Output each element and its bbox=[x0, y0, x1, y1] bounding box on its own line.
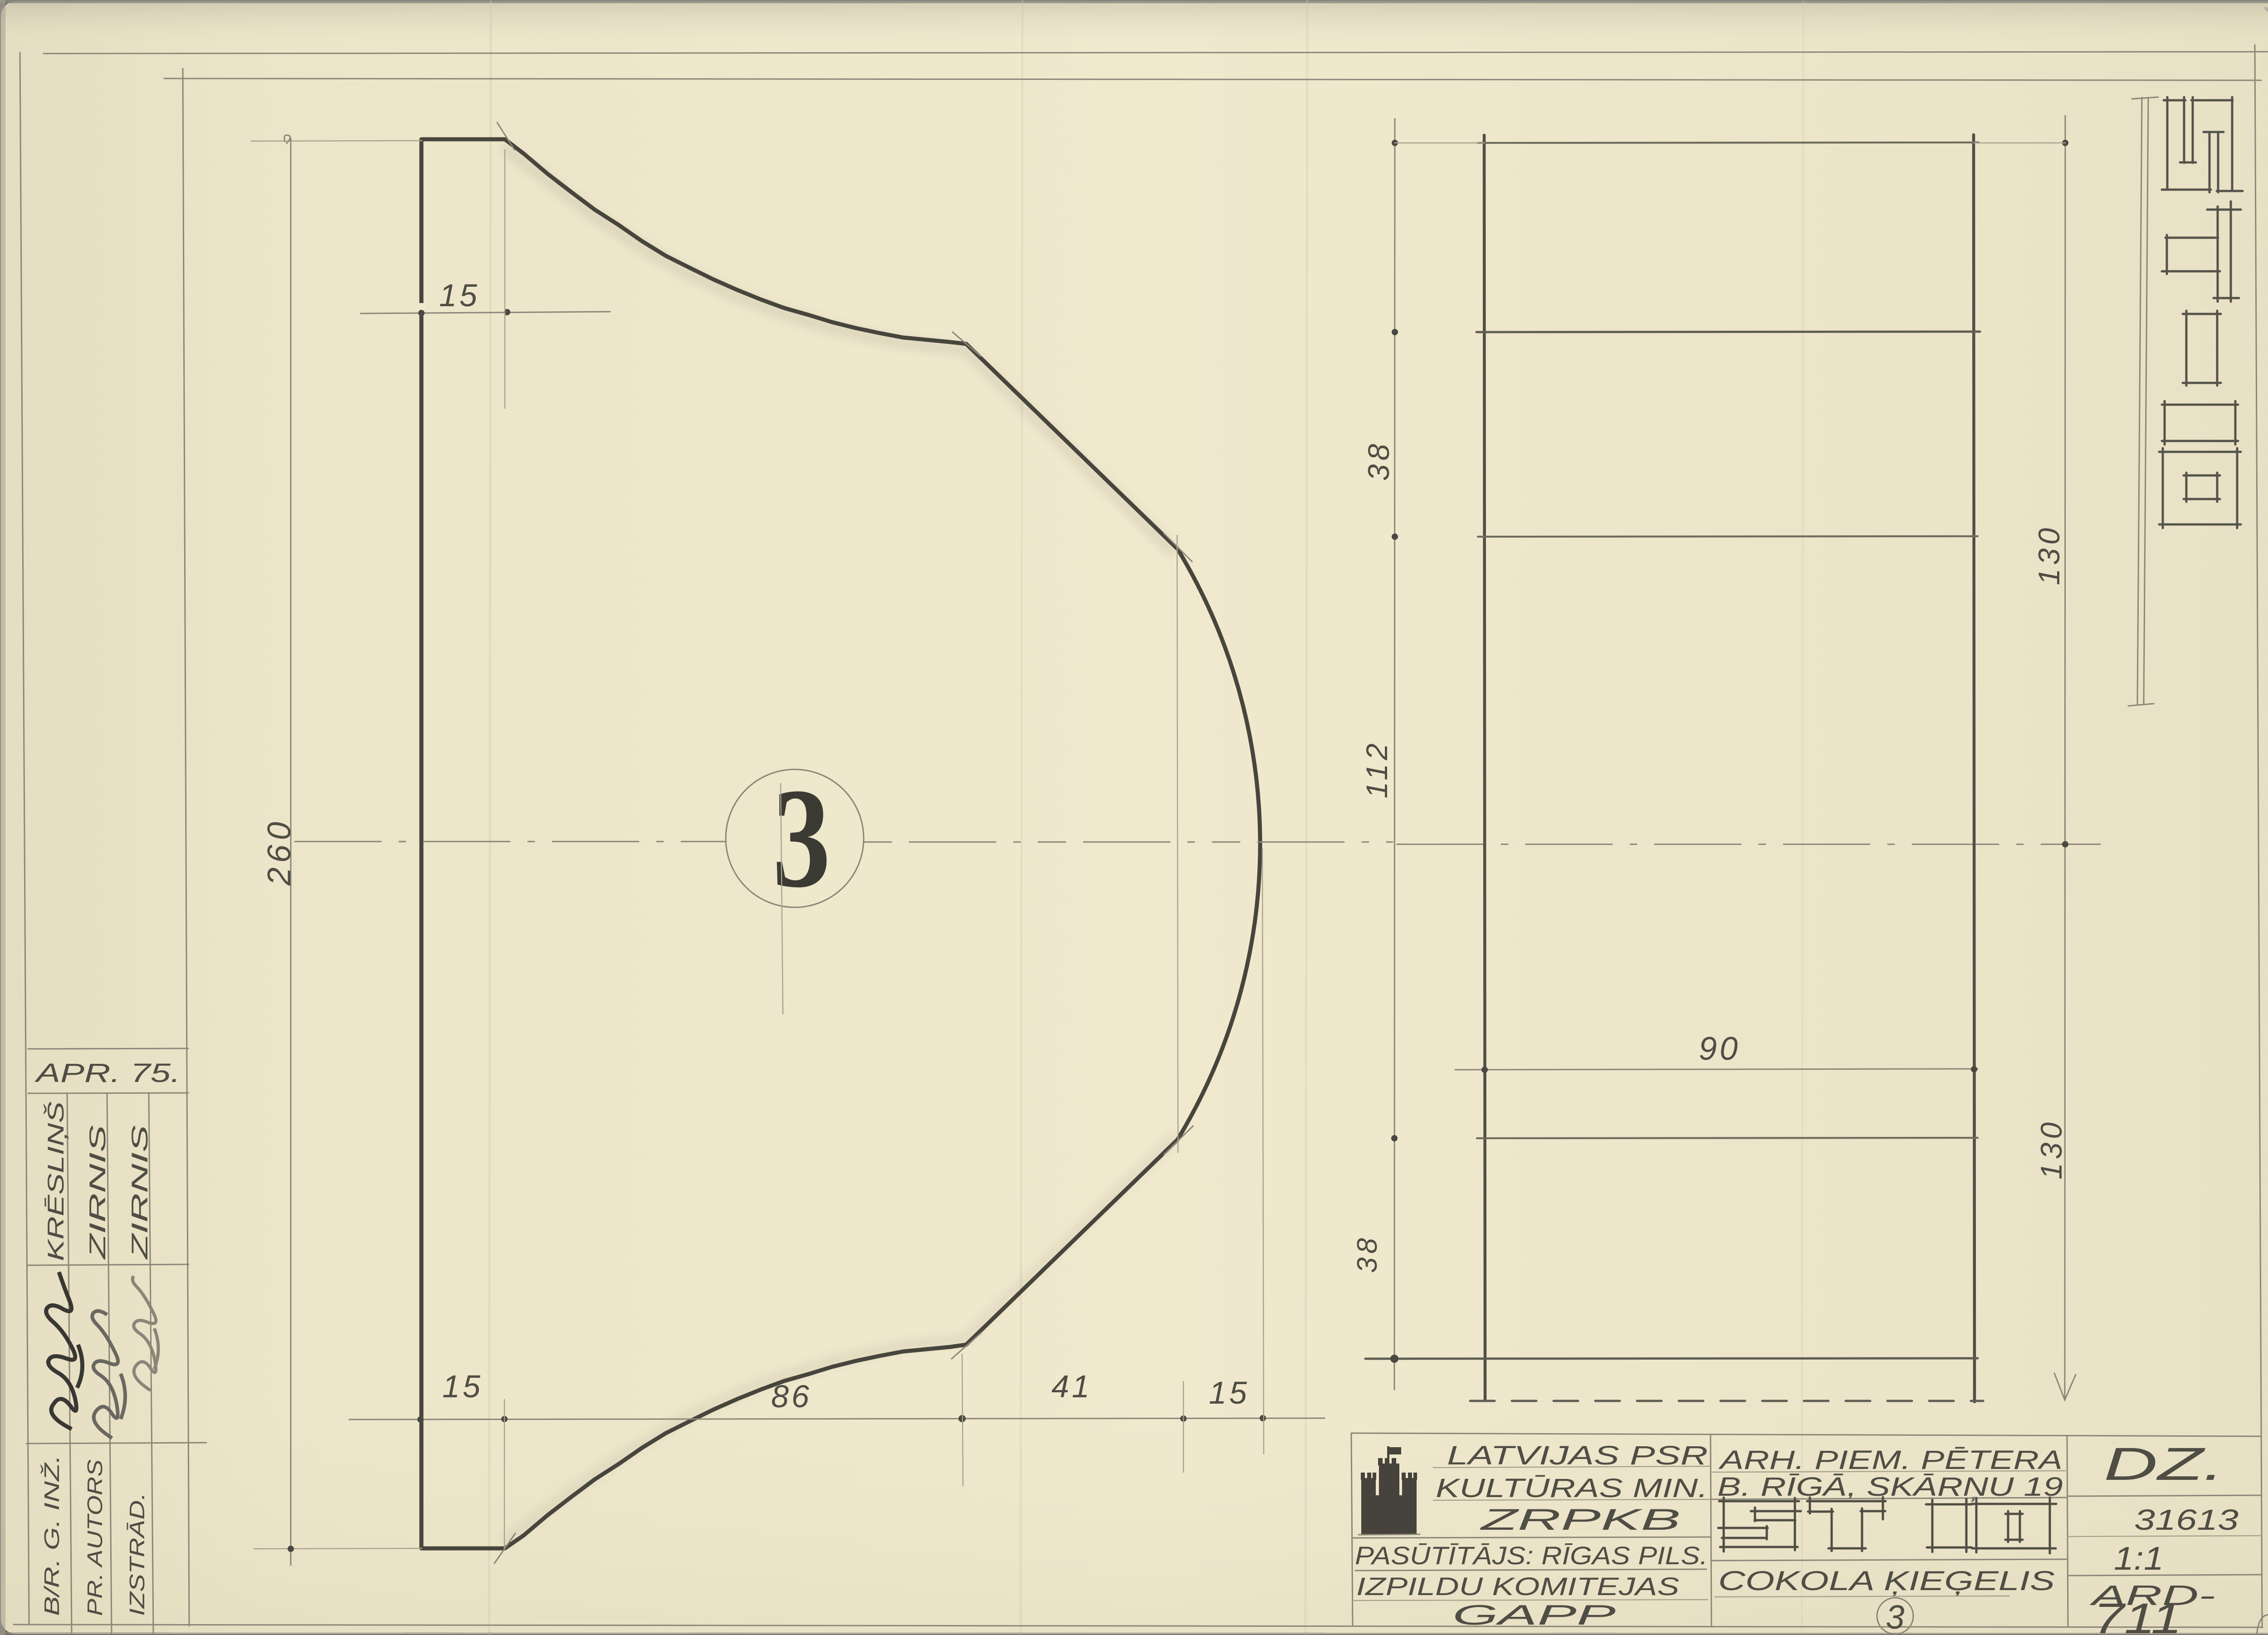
svg-text:GAPP: GAPP bbox=[1452, 1600, 1616, 1631]
svg-text:3: 3 bbox=[1886, 1598, 1904, 1635]
svg-text:260: 260 bbox=[261, 817, 298, 886]
svg-text:38: 38 bbox=[1352, 1234, 1383, 1273]
svg-text:IZSTRĀD.: IZSTRĀD. bbox=[125, 1493, 149, 1616]
svg-text:31613: 31613 bbox=[2134, 1503, 2239, 1536]
svg-text:112: 112 bbox=[1360, 740, 1393, 798]
svg-text:1:1: 1:1 bbox=[2114, 1541, 2164, 1577]
svg-text:KRĒSLIŅŠ: KRĒSLIŅŠ bbox=[43, 1101, 68, 1261]
svg-text:15: 15 bbox=[439, 278, 480, 313]
svg-text:PASŪTĪTĀJS: RĪGAS PILS.: PASŪTĪTĀJS: RĪGAS PILS. bbox=[1355, 1541, 1708, 1570]
svg-text:86: 86 bbox=[771, 1379, 812, 1414]
svg-text:41: 41 bbox=[1051, 1369, 1092, 1404]
svg-text:711: 711 bbox=[2093, 1595, 2182, 1635]
svg-text:15: 15 bbox=[1209, 1375, 1250, 1410]
svg-text:15: 15 bbox=[442, 1369, 483, 1404]
svg-text:38: 38 bbox=[1362, 441, 1395, 481]
svg-text:ZIRNIS: ZIRNIS bbox=[127, 1125, 152, 1260]
svg-text:APR. 75.: APR. 75. bbox=[34, 1058, 181, 1088]
svg-text:IZPILDU KOMITEJAS: IZPILDU KOMITEJAS bbox=[1356, 1572, 1679, 1601]
svg-text:90: 90 bbox=[1699, 1031, 1740, 1067]
svg-text:B/R. G. INŽ.: B/R. G. INŽ. bbox=[40, 1455, 64, 1616]
svg-text:PR. AUTORS: PR. AUTORS bbox=[83, 1459, 107, 1616]
svg-text:ZRPKB: ZRPKB bbox=[1479, 1503, 1681, 1536]
svg-text:KULTŪRAS MIN.: KULTŪRAS MIN. bbox=[1436, 1473, 1708, 1503]
svg-text:ZIRNIS: ZIRNIS bbox=[85, 1125, 110, 1260]
svg-text:DZ.: DZ. bbox=[2104, 1438, 2224, 1490]
svg-text:COKOLA ĶIEĢELIS: COKOLA ĶIEĢELIS bbox=[1718, 1566, 2055, 1596]
svg-text:ARH. PIEM. PĒTERA: ARH. PIEM. PĒTERA bbox=[1718, 1445, 2063, 1475]
svg-text:130: 130 bbox=[2034, 1119, 2068, 1180]
svg-text:LATVIJAS PSR: LATVIJAS PSR bbox=[1447, 1441, 1708, 1470]
svg-text:130: 130 bbox=[2032, 524, 2066, 585]
